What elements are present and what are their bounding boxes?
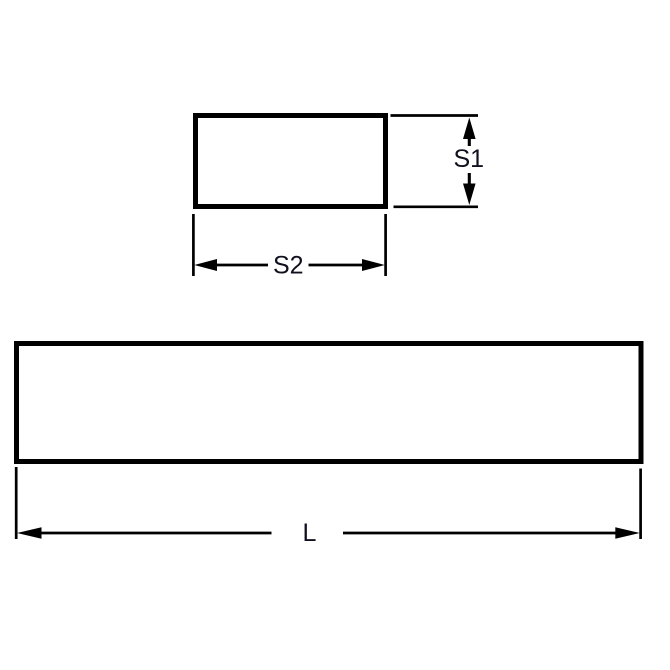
svg-text:L: L [303,519,317,547]
svg-text:S1: S1 [454,145,485,173]
svg-text:S2: S2 [273,252,304,280]
